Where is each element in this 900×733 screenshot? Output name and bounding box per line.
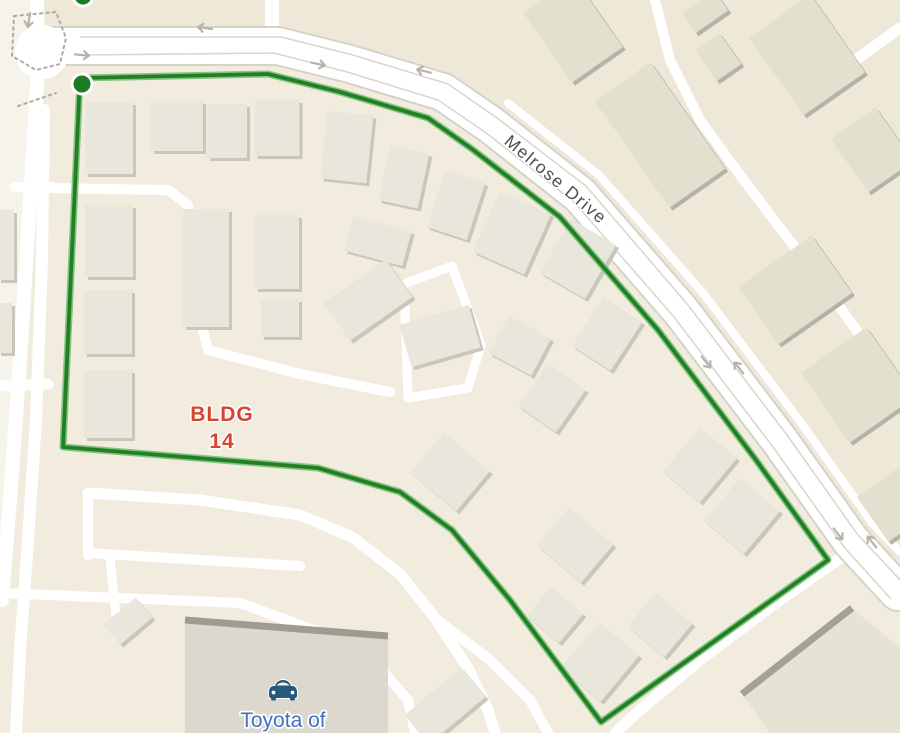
- building-footprint: [255, 215, 299, 289]
- building-footprint: [85, 102, 133, 174]
- building: [255, 100, 303, 159]
- building-footprint: [255, 100, 300, 156]
- building: [321, 111, 377, 186]
- car-icon-wheel-right: [290, 698, 295, 701]
- map-geometry-layer: [0, 0, 900, 733]
- car-icon-headlight-right: [291, 691, 295, 695]
- building: [85, 102, 136, 177]
- building-footprint: [261, 299, 299, 337]
- building-footprint: [207, 104, 247, 158]
- building-footprint: [321, 111, 374, 183]
- building: [207, 104, 250, 161]
- building-footprint: [84, 290, 132, 354]
- building: [151, 101, 206, 154]
- building-footprint: [0, 210, 14, 280]
- building-footprint: [0, 303, 12, 353]
- building-footprint: [151, 101, 203, 151]
- building-footprint: [84, 370, 132, 438]
- building: [255, 215, 302, 292]
- bldg-14-label-line1: BLDG: [190, 403, 254, 426]
- route-marker[interactable]: [72, 74, 92, 94]
- map-canvas[interactable]: Melrose Drive BLDG 14 Toyota of: [0, 0, 900, 733]
- map-svg[interactable]: Melrose Drive BLDG 14 Toyota of: [0, 0, 900, 733]
- car-icon-headlight-left: [272, 691, 276, 695]
- building: [261, 299, 302, 340]
- car-icon-wheel-left: [271, 698, 276, 701]
- building: [0, 303, 15, 356]
- intersection: [15, 25, 69, 79]
- building: [183, 209, 232, 330]
- building: [84, 370, 135, 441]
- building-footprint: [85, 205, 133, 277]
- road: [0, 384, 48, 386]
- building-footprint: [183, 209, 229, 327]
- building: [85, 205, 136, 280]
- building: [0, 210, 17, 283]
- route-marker[interactable]: [73, 0, 93, 6]
- poi-label-toyota[interactable]: Toyota of: [240, 709, 325, 732]
- building: [84, 290, 135, 357]
- bldg-14-label-line2: 14: [209, 430, 234, 453]
